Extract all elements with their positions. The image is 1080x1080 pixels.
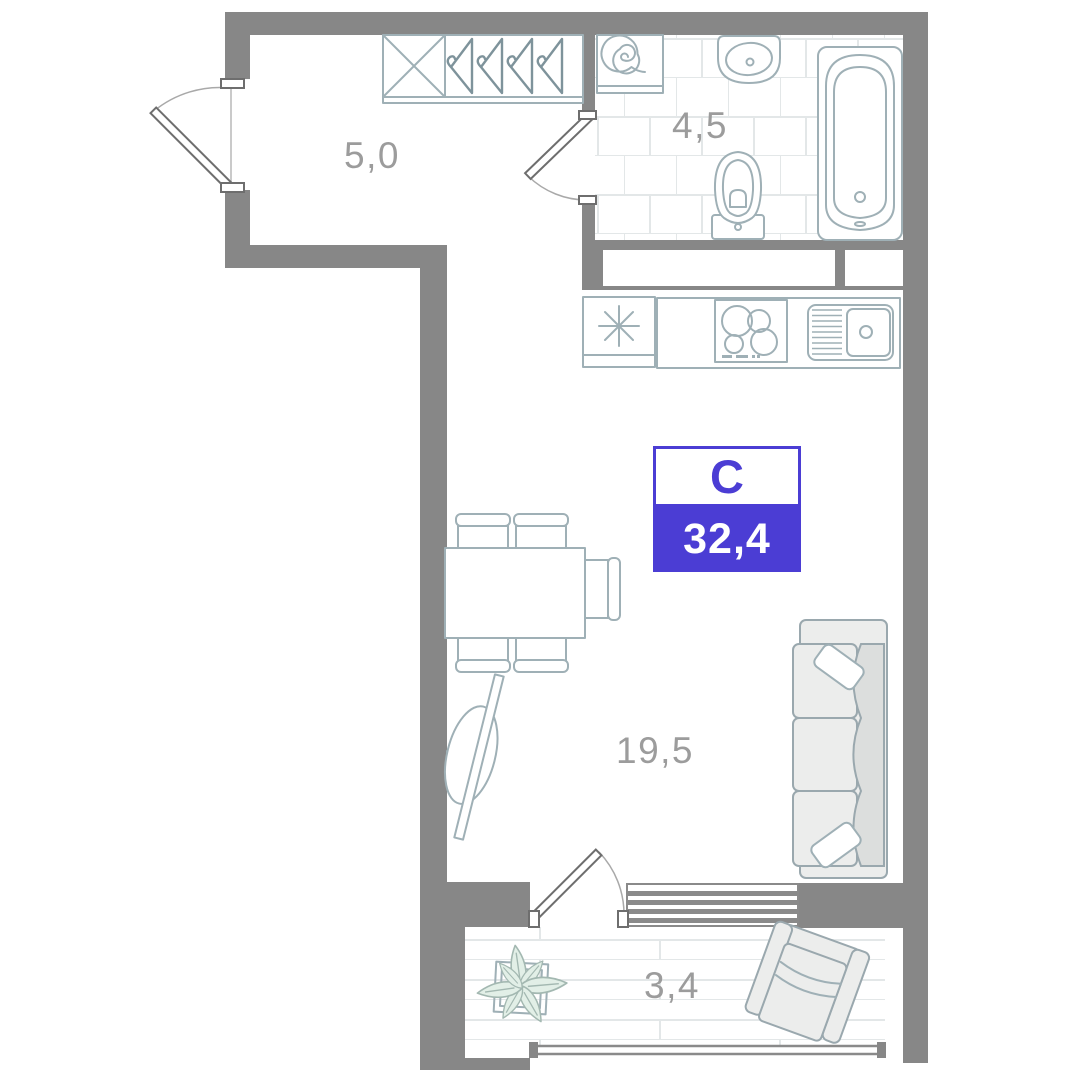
washbasin-icon [718,36,780,83]
hob-icon [715,300,787,362]
bathroom-door-icon [525,111,596,204]
apartment-type-label: С [653,446,801,507]
sofa-icon [793,620,887,878]
apartment-badge: С 32,4 [653,446,801,572]
washing-machine-icon [597,35,663,93]
room-area-living: 19,5 [616,730,694,772]
radiator-grille-icon [627,884,798,926]
balcony-door-icon [529,850,628,927]
dining-set [445,514,620,672]
bathtub-icon [818,47,902,240]
floor-plan-drawing [0,0,1080,1080]
room-area-balcony: 3,4 [644,965,700,1007]
entrance-door-icon [151,79,244,192]
duct-niche [603,250,835,286]
floor-plan: 5,0 4,5 19,5 3,4 С 32,4 [0,0,1080,1080]
apartment-total-area: 32,4 [653,507,801,572]
kitchen-sink-icon [808,305,893,360]
clothes-hangers-icon [448,39,562,93]
duct-niche [845,250,903,286]
room-area-bathroom: 4,5 [672,105,728,147]
dining-table [445,548,585,638]
room-area-hallway: 5,0 [344,135,400,177]
fridge-icon [583,297,655,367]
toilet-icon [712,152,764,239]
